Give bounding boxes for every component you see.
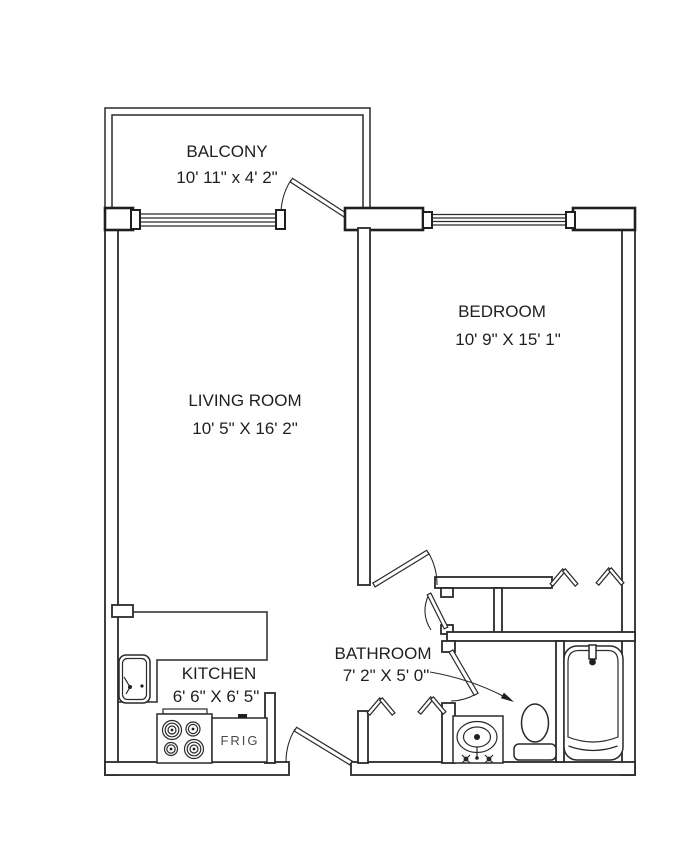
stove-icon (157, 709, 212, 763)
entry-door-icon (286, 727, 352, 765)
balcony-door-icon (281, 178, 346, 217)
wall-post (345, 208, 423, 230)
balcony-dimensions: 10' 11" x 4' 2" (176, 168, 277, 187)
balcony-label: BALCONY (186, 142, 267, 161)
bedroom-dimensions: 10' 9" X 15' 1" (455, 330, 561, 349)
burner-icon (186, 722, 200, 736)
kitchen-sink-icon (119, 655, 150, 703)
wall-post (105, 208, 133, 230)
fridge-icon: FRIG (212, 714, 267, 762)
toilet-icon (514, 704, 556, 760)
wall-post (573, 208, 635, 230)
bathroom-fixtures (453, 645, 623, 763)
burner-icon (165, 743, 178, 756)
floor-plan-drawing: FRIG BAL (0, 0, 690, 851)
kitchen-fixtures: FRIG (112, 605, 267, 763)
floor-plan-canvas: FRIG BAL (0, 0, 690, 851)
bifold-door-icon (367, 698, 395, 715)
bifold-door-icon (550, 569, 578, 586)
bathroom-door-icon (449, 650, 478, 701)
kitchen-dimensions: 6' 6" X 6' 5" (173, 687, 260, 706)
bedroom-window-icon (423, 212, 575, 228)
kitchen-label: KITCHEN (182, 664, 257, 683)
burner-icon (185, 740, 204, 759)
bathroom-sink-icon (453, 716, 503, 763)
burner-icon (163, 721, 182, 740)
living-room-label: LIVING ROOM (188, 391, 301, 410)
bathroom-label: BATHROOM (335, 644, 432, 663)
bathtub-icon (564, 645, 623, 760)
bedroom-door-icon (373, 550, 437, 587)
living-room-dimensions: 10' 5" X 16' 2" (192, 419, 298, 438)
fridge-label: FRIG (220, 733, 259, 748)
closet-door-icon (425, 593, 448, 630)
bifold-door-icon (596, 568, 624, 585)
bedroom-label: BEDROOM (458, 302, 546, 321)
bathroom-dimensions: 7' 2" X 5' 0" (343, 666, 430, 685)
living-room-window-icon (131, 210, 285, 229)
